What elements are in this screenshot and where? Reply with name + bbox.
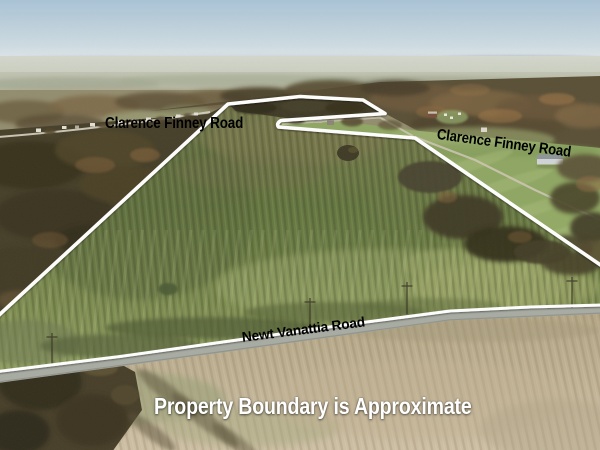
aerial-scene [0, 0, 600, 450]
disclaimer-text: Property Boundary is Approximate [154, 395, 472, 418]
aerial-property-photo: Clarence Finney Road Clarence Finney Roa… [0, 0, 600, 450]
road-label-clarence-finney-west: Clarence Finney Road [105, 116, 243, 132]
photo-grain [0, 52, 600, 450]
